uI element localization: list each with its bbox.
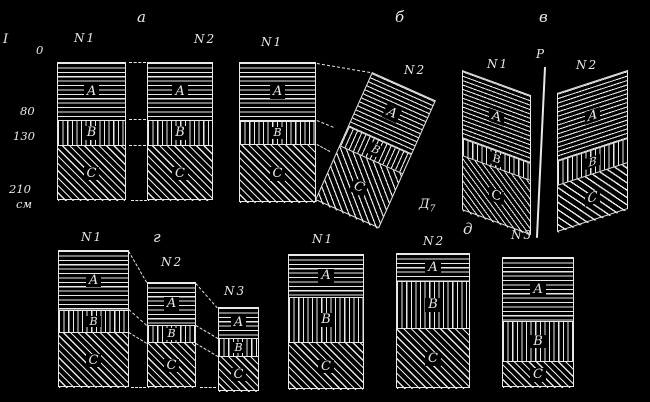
horizon-letter-А: А <box>84 85 100 99</box>
section-roman-numeral: I <box>3 33 8 46</box>
horizon-letter-А: А <box>231 316 247 330</box>
correlation-dash-line <box>195 343 218 357</box>
borehole-column-v-N1: АВС <box>462 70 531 235</box>
panel-label-v: в <box>539 10 548 25</box>
horizon-layer-В: В <box>59 310 128 333</box>
horizon-letter-В: В <box>231 342 245 354</box>
horizon-letter-С: С <box>164 359 180 373</box>
horizon-letter-В: В <box>425 298 441 312</box>
horizon-layer-С: С <box>58 146 125 201</box>
depth-tick-label-130: 130 <box>13 131 35 143</box>
panel-label-g: г <box>153 230 161 245</box>
panel-label-d: д <box>463 222 473 237</box>
horizon-layer-С: С <box>503 362 573 388</box>
horizon-layer-В: В <box>148 120 212 146</box>
horizon-letter-В: В <box>367 142 385 158</box>
horizon-layer-В: В <box>58 120 125 146</box>
horizon-layer-А: А <box>219 308 258 338</box>
horizon-letter-С: С <box>349 178 369 197</box>
horizon-letter-С: С <box>84 167 100 181</box>
borehole-label-b-N2: N2 <box>404 64 426 76</box>
panel-label-b: б <box>395 10 404 25</box>
horizon-letter-С: С <box>425 352 441 366</box>
horizon-letter-В: В <box>164 328 178 340</box>
correlation-dash-line <box>317 120 334 128</box>
horizon-layer-В: В <box>148 325 195 343</box>
horizon-layer-С: С <box>148 146 212 201</box>
correlation-dash-line <box>129 62 146 63</box>
horizon-letter-С: С <box>530 368 546 382</box>
horizon-letter-В: В <box>172 126 188 140</box>
borehole-label-a-N1: N1 <box>74 32 96 44</box>
horizon-letter-С: С <box>585 189 601 208</box>
horizon-letter-А: А <box>270 85 286 99</box>
horizon-layer-А: А <box>289 255 363 297</box>
figure-canvas: I Д7 080130210смаN1АВСN2АВСбN1АВСN2АВСвР… <box>0 0 650 402</box>
horizon-layer-С: С <box>148 343 195 388</box>
borehole-column-g-N3: АВС <box>218 307 259 391</box>
correlation-dash-line <box>195 325 218 339</box>
horizon-layer-А: А <box>58 63 125 120</box>
horizon-letter-С: С <box>489 186 505 205</box>
borehole-label-d-N2: N2 <box>423 235 445 247</box>
borehole-label-g-N3: N3 <box>224 285 246 297</box>
borehole-label-b-N1: N1 <box>261 36 283 48</box>
horizon-letter-В: В <box>86 316 100 328</box>
horizon-layer-В: В <box>219 338 258 357</box>
correlation-dash-line <box>195 283 218 309</box>
horizon-letter-В: В <box>270 127 284 139</box>
borehole-label-g-N1: N1 <box>81 231 103 243</box>
horizon-layer-А: А <box>59 251 128 310</box>
horizon-letter-А: А <box>86 274 102 288</box>
correlation-dash-line <box>317 63 370 73</box>
borehole-column-g-N1: АВС <box>58 250 129 387</box>
horizon-letter-А: А <box>172 85 188 99</box>
horizon-layer-С: С <box>397 329 469 389</box>
horizon-layer-В: В <box>503 321 573 362</box>
depth-tick-label-80: 80 <box>20 106 35 118</box>
figure-code-sub: 7 <box>430 205 436 215</box>
correlation-dash-line <box>200 387 216 388</box>
horizon-letter-А: А <box>489 107 505 126</box>
fault-label-v: Р <box>536 48 546 60</box>
borehole-label-g-N2: N2 <box>161 256 183 268</box>
horizon-letter-А: А <box>318 269 334 283</box>
horizon-letter-А: А <box>425 261 441 275</box>
horizon-layer-С: С <box>59 333 128 388</box>
horizon-layer-В: В <box>397 281 469 329</box>
panel-label-a: а <box>137 10 146 25</box>
borehole-column-a-N1: АВС <box>57 62 126 200</box>
horizon-layer-С: С <box>289 343 363 390</box>
figure-code-label: Д7 <box>419 198 435 215</box>
borehole-label-d-N3: N3 <box>511 229 533 241</box>
correlation-dash-line <box>131 200 147 201</box>
correlation-dash-line <box>128 309 147 326</box>
correlation-dash-line <box>317 144 330 152</box>
borehole-column-g-N2: АВС <box>147 282 196 387</box>
horizon-letter-А: А <box>382 104 402 123</box>
borehole-column-b-N2: АВС <box>315 72 436 228</box>
horizon-layer-А: А <box>397 254 469 281</box>
correlation-dash-line <box>128 251 147 282</box>
depth-tick-label-210: 210 <box>9 184 31 196</box>
horizon-letter-С: С <box>172 167 188 181</box>
borehole-column-b-N1: АВС <box>239 62 316 202</box>
borehole-column-d-N1: АВС <box>288 254 364 389</box>
horizon-letter-В: В <box>84 126 100 140</box>
borehole-column-v-N2: АВС <box>557 70 628 232</box>
borehole-column-a-N2: АВС <box>147 62 213 200</box>
correlation-dash-line <box>129 119 146 120</box>
horizon-letter-А: А <box>585 107 601 126</box>
horizon-layer-С: С <box>240 145 315 203</box>
horizon-letter-В: В <box>489 151 503 168</box>
borehole-column-d-N3: АВС <box>502 257 574 387</box>
fault-line <box>536 67 546 238</box>
borehole-label-d-N1: N1 <box>312 233 334 245</box>
horizon-letter-С: С <box>270 167 286 181</box>
borehole-label-v-N2: N2 <box>576 59 598 71</box>
depth-unit-label: см <box>16 199 32 211</box>
depth-tick-label-0: 0 <box>36 45 43 57</box>
correlation-dash-line <box>128 332 147 344</box>
horizon-layer-А: А <box>240 63 315 121</box>
horizon-letter-В: В <box>530 335 546 349</box>
borehole-label-v-N1: N1 <box>487 58 509 70</box>
horizon-layer-В: В <box>289 297 363 343</box>
figure-code-main: Д <box>419 197 430 212</box>
horizon-layer-С: С <box>219 357 258 392</box>
correlation-dash-line <box>131 387 146 388</box>
horizon-layer-В: В <box>240 121 315 145</box>
borehole-column-d-N2: АВС <box>396 253 470 388</box>
horizon-letter-С: С <box>86 354 102 368</box>
horizon-layer-А: А <box>148 283 195 325</box>
horizon-letter-В: В <box>318 313 334 327</box>
horizon-letter-А: А <box>164 297 180 311</box>
horizon-layer-А: А <box>503 258 573 321</box>
horizon-letter-В: В <box>585 154 599 170</box>
horizon-letter-А: А <box>530 283 546 297</box>
correlation-dash-line <box>129 145 146 146</box>
horizon-layer-А: А <box>148 63 212 120</box>
borehole-label-a-N2: N2 <box>194 33 216 45</box>
horizon-letter-С: С <box>231 368 247 382</box>
horizon-letter-С: С <box>318 360 334 374</box>
